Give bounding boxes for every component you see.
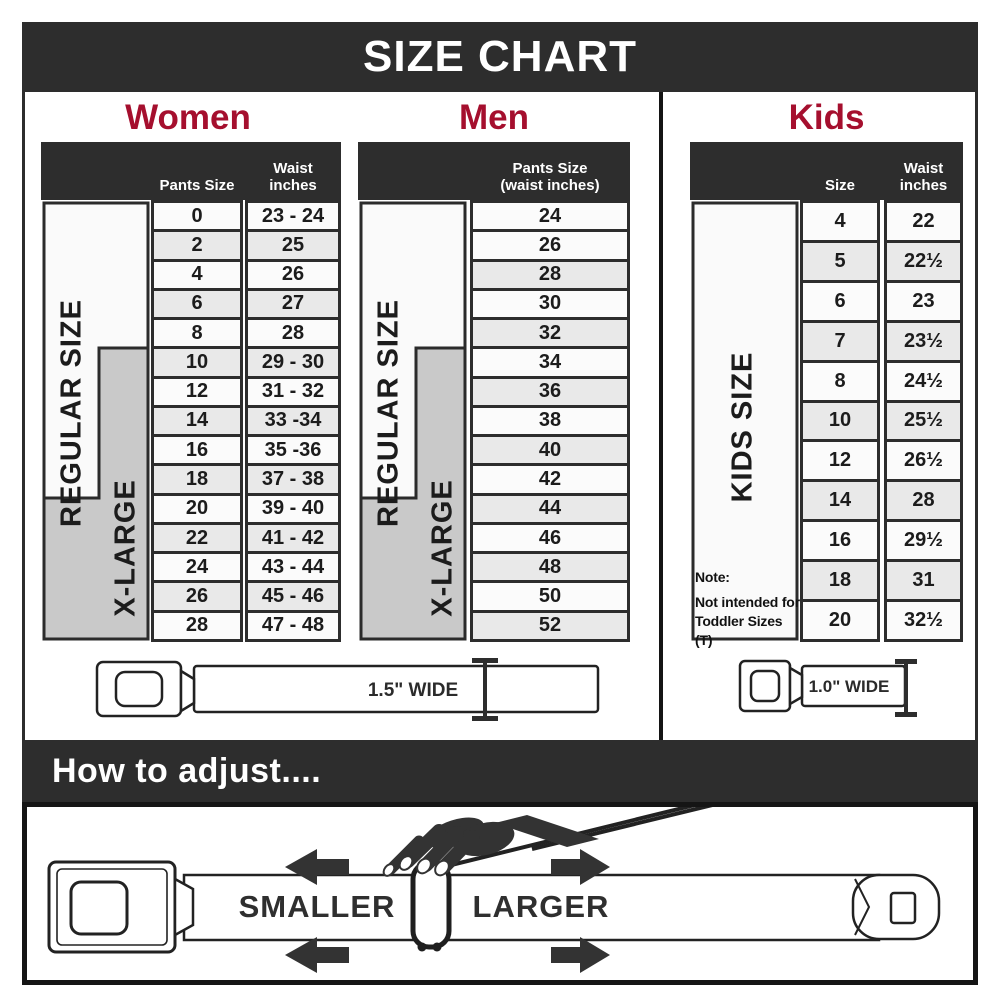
adjust-illustration-frame: SMALLER LARGER: [22, 802, 978, 985]
men-pants-size-column: 242628303234363840424446485052: [470, 200, 630, 642]
women-waist-column: 23 - 242526272829 - 3031 - 3233 -3435 -3…: [245, 200, 341, 642]
waist-cell: 31: [887, 562, 960, 599]
waist-cell: 24½: [887, 363, 960, 400]
pants-size-cell: 30: [473, 291, 627, 317]
kids-size-label: KIDS SIZE: [727, 352, 760, 503]
women-size-table: Pants Size Waist inches REGULAR SIZE X-L…: [41, 142, 341, 642]
waist-cell: 22½: [887, 243, 960, 280]
belt-slider: [413, 863, 449, 947]
size-chart-body: Women Men Kids Pants Size Waist inches R…: [22, 92, 978, 740]
waist-cell: 27: [248, 291, 338, 317]
waist-cell: 25: [248, 232, 338, 258]
men-xlarge-label: X-LARGE: [427, 479, 460, 617]
men-heading: Men: [358, 96, 630, 140]
waist-cell: 32½: [887, 602, 960, 639]
waist-cell: 39 - 40: [248, 496, 338, 522]
pants-size-cell: 18: [154, 466, 240, 492]
smaller-label: SMALLER: [239, 889, 396, 924]
waist-cell: 28: [248, 320, 338, 346]
how-to-adjust-title: How to adjust....: [22, 752, 321, 791]
pants-size-cell: 28: [154, 613, 240, 639]
pants-size-cell: 16: [154, 437, 240, 463]
page-title: SIZE CHART: [363, 32, 637, 82]
pants-size-cell: 24: [473, 203, 627, 229]
pants-size-cell: 4: [154, 262, 240, 288]
women-pants-size-column: 0246810121416182022242628: [151, 200, 243, 642]
adult-belt-width-label: 1.5" WIDE: [368, 680, 458, 701]
pants-size-cell: 38: [473, 408, 627, 434]
pants-size-cell: 20: [154, 496, 240, 522]
size-cell: 6: [803, 283, 877, 320]
pants-size-cell: 34: [473, 349, 627, 375]
size-cell: 12: [803, 442, 877, 479]
buckle-button: [116, 672, 162, 706]
waist-cell: 23½: [887, 323, 960, 360]
pants-size-cell: 48: [473, 554, 627, 580]
waist-cell: 35 -36: [248, 437, 338, 463]
women-pants-size-header: Pants Size: [151, 142, 243, 200]
size-cell: 8: [803, 363, 877, 400]
waist-cell: 33 -34: [248, 408, 338, 434]
buckle-latch: [175, 879, 193, 935]
kids-size-column: 45678101214161820: [800, 200, 880, 642]
buckle-latch: [790, 668, 802, 704]
pants-size-cell: 10: [154, 349, 240, 375]
kids-heading: Kids: [690, 96, 963, 140]
waist-cell: 29½: [887, 522, 960, 559]
waist-cell: 31 - 32: [248, 379, 338, 405]
waist-cell: 37 - 38: [248, 466, 338, 492]
pants-size-cell: 14: [154, 408, 240, 434]
size-cell: 18: [803, 562, 877, 599]
women-xlarge-label: X-LARGE: [110, 479, 143, 617]
kids-waist-column: 2222½2323½24½25½26½2829½3132½: [884, 200, 963, 642]
men-size-table: Pants Size (waist inches) REGULAR SIZE X…: [358, 142, 630, 642]
men-pants-size-header: Pants Size (waist inches): [470, 142, 630, 200]
waist-cell: 25½: [887, 403, 960, 440]
waist-cell: 47 - 48: [248, 613, 338, 639]
women-heading: Women: [38, 96, 338, 140]
adult-belt-illustration: 1.5" WIDE: [75, 655, 610, 725]
pants-size-cell: 2: [154, 232, 240, 258]
pants-size-cell: 8: [154, 320, 240, 346]
pants-size-cell: 0: [154, 203, 240, 229]
pants-size-cell: 12: [154, 379, 240, 405]
waist-cell: 28: [887, 482, 960, 519]
pants-size-cell: 28: [473, 262, 627, 288]
pants-size-cell: 26: [154, 583, 240, 609]
kids-size-table: Size Waist inches KIDS SIZE Note: Not in…: [690, 142, 963, 642]
pants-size-cell: 42: [473, 466, 627, 492]
waist-cell: 23 - 24: [248, 203, 338, 229]
size-chart-banner: SIZE CHART: [22, 22, 978, 92]
larger-label: LARGER: [473, 889, 610, 924]
waist-cell: 23: [887, 283, 960, 320]
how-to-adjust-band: How to adjust....: [22, 740, 978, 802]
waist-cell: 41 - 42: [248, 525, 338, 551]
waist-cell: 43 - 44: [248, 554, 338, 580]
size-cell: 5: [803, 243, 877, 280]
belt-tip-slot: [891, 893, 915, 923]
pants-size-cell: 22: [154, 525, 240, 551]
buckle-button: [71, 882, 127, 934]
pants-size-cell: 26: [473, 232, 627, 258]
size-cell: 16: [803, 522, 877, 559]
pants-size-cell: 52: [473, 613, 627, 639]
pants-size-cell: 36: [473, 379, 627, 405]
waist-cell: 26½: [887, 442, 960, 479]
size-cell: 14: [803, 482, 877, 519]
kids-size-header: Size: [800, 142, 880, 200]
kids-belt-illustration: 1.0" WIDE: [727, 658, 967, 718]
men-regular-size-label: REGULAR SIZE: [373, 299, 406, 527]
kids-waist-header: Waist inches: [884, 142, 963, 200]
pants-size-cell: 24: [154, 554, 240, 580]
size-cell: 20: [803, 602, 877, 639]
adjust-belt-illustration: SMALLER LARGER: [27, 807, 973, 980]
waist-cell: 45 - 46: [248, 583, 338, 609]
size-cell: 4: [803, 203, 877, 240]
pants-size-cell: 46: [473, 525, 627, 551]
kids-belt-width-label: 1.0" WIDE: [809, 677, 890, 696]
pants-size-cell: 32: [473, 320, 627, 346]
waist-cell: 22: [887, 203, 960, 240]
kids-note: Note: Not intended for Toddler Sizes (T): [695, 568, 801, 650]
pants-size-cell: 6: [154, 291, 240, 317]
men-kids-divider: [659, 92, 663, 740]
pants-size-cell: 40: [473, 437, 627, 463]
pants-size-cell: 44: [473, 496, 627, 522]
pants-size-cell: 50: [473, 583, 627, 609]
buckle-latch: [181, 671, 194, 711]
women-regular-size-label: REGULAR SIZE: [56, 299, 89, 527]
women-waist-header: Waist inches: [245, 142, 341, 200]
buckle-button: [751, 671, 779, 701]
waist-cell: 29 - 30: [248, 349, 338, 375]
size-cell: 10: [803, 403, 877, 440]
waist-cell: 26: [248, 262, 338, 288]
size-cell: 7: [803, 323, 877, 360]
size-chart-page: SIZE CHART Women Men Kids Pants Size Wai…: [0, 0, 1000, 1000]
